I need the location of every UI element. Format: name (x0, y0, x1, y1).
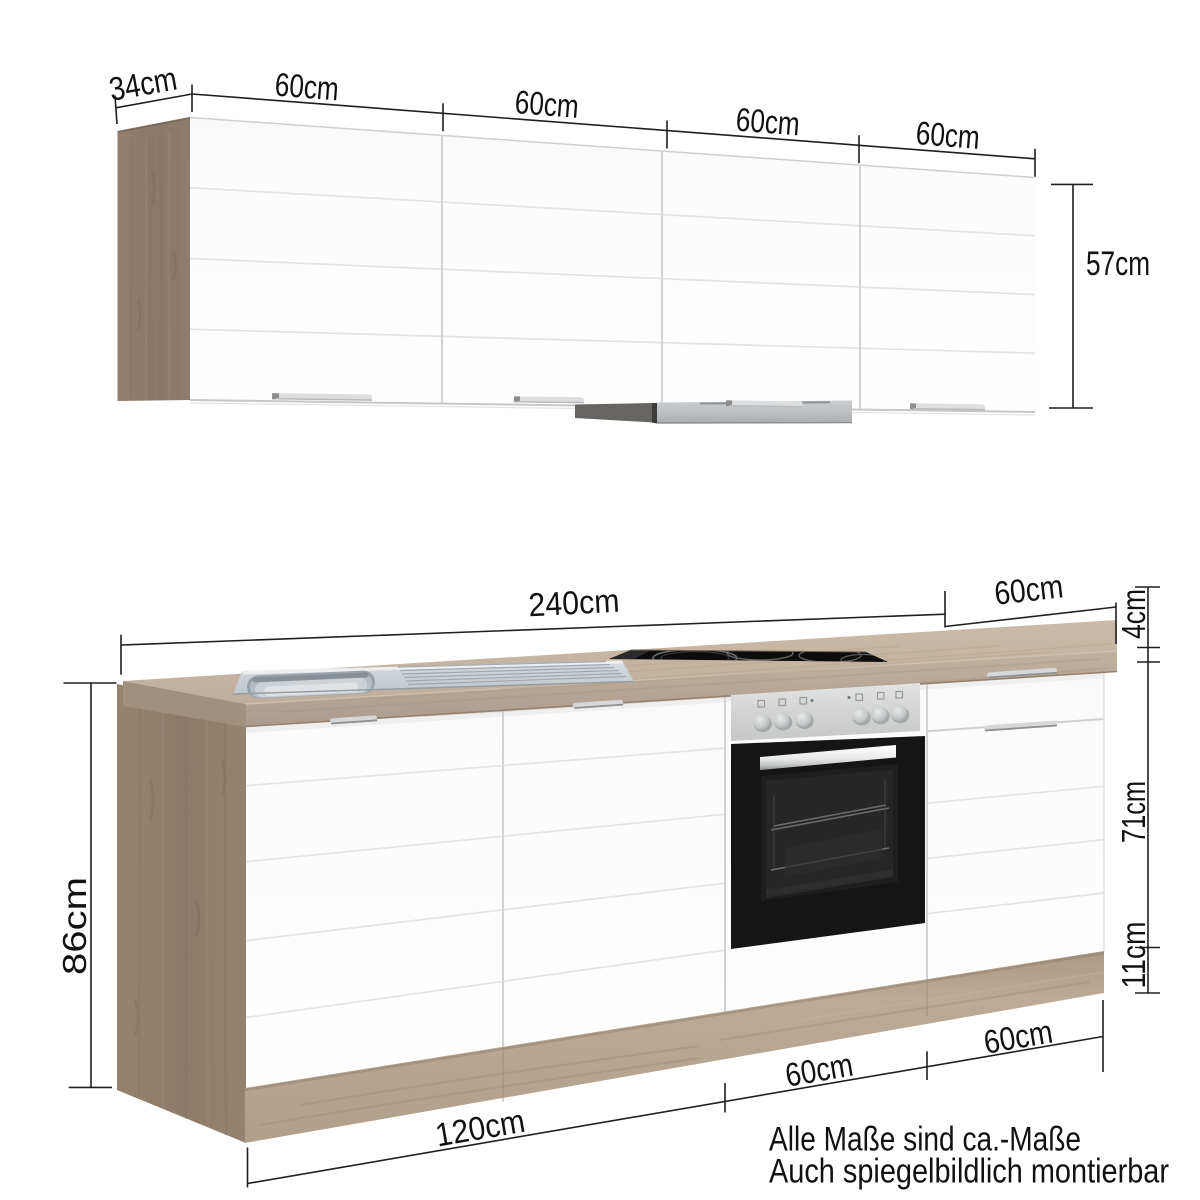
svg-text:60cm: 60cm (514, 83, 581, 125)
svg-text:60cm: 60cm (992, 567, 1065, 612)
svg-text:60cm: 60cm (274, 66, 341, 108)
svg-text:71cm: 71cm (1115, 781, 1152, 843)
svg-text:4cm: 4cm (1115, 589, 1152, 639)
svg-text:11cm: 11cm (1115, 922, 1152, 989)
svg-text:57cm: 57cm (1086, 245, 1150, 283)
svg-text:60cm: 60cm (915, 114, 982, 156)
svg-text:Auch spiegelbildlich montierba: Auch spiegelbildlich montierbar (769, 1153, 1169, 1191)
svg-text:60cm: 60cm (735, 101, 802, 143)
svg-text:240cm: 240cm (527, 582, 620, 624)
svg-text:86cm: 86cm (56, 877, 93, 975)
